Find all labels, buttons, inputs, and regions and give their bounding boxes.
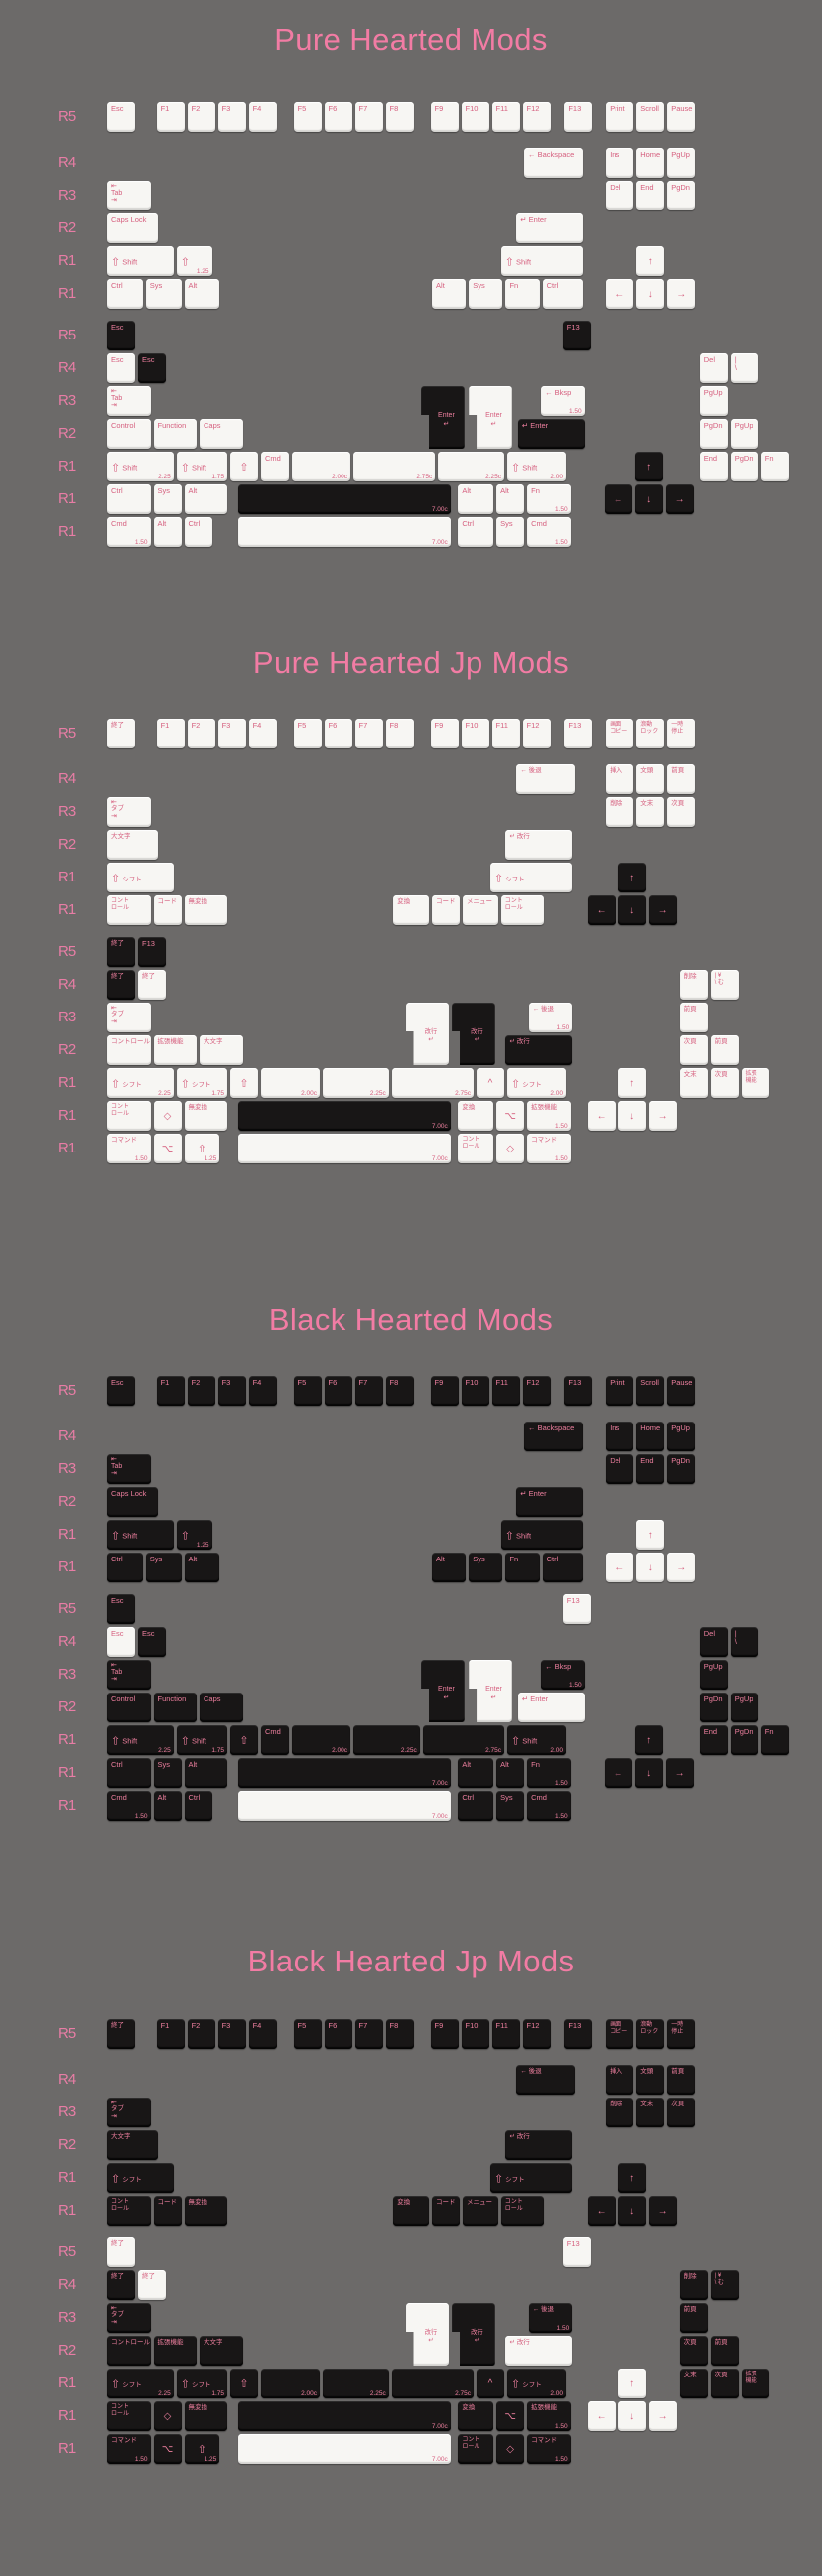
keycap: End bbox=[700, 1725, 728, 1755]
keycap: F4 bbox=[249, 719, 277, 748]
keycap: 終了 bbox=[138, 970, 166, 1000]
key-legend: F7 bbox=[359, 1379, 368, 1387]
key-legend: ⇧シフト bbox=[111, 2169, 142, 2187]
keycap: 大文字 bbox=[200, 2336, 243, 2366]
key-legend: Esc bbox=[142, 356, 155, 364]
keycap: ← Backspace bbox=[524, 148, 583, 178]
key-legend: コントロール bbox=[111, 2339, 150, 2346]
key-size-sublabel: 2.75c bbox=[416, 474, 432, 480]
key-legend: コマンド bbox=[111, 1137, 137, 1144]
keycap: 次頁 bbox=[667, 797, 695, 827]
keycap: F7 bbox=[355, 719, 383, 748]
key-legend: 拡張 機能 bbox=[746, 2372, 757, 2384]
row-label: R5 bbox=[58, 937, 99, 967]
row-label: R1 bbox=[58, 895, 99, 925]
keycap: 画面 コピー bbox=[606, 719, 633, 748]
key-legend: ↵ 改行 bbox=[509, 833, 529, 840]
keycap: F13 bbox=[563, 321, 591, 350]
key-size-sublabel: 7.00c bbox=[432, 1155, 448, 1162]
key-legend: F4 bbox=[253, 2022, 262, 2030]
key-glyph: ⇧ bbox=[230, 452, 258, 481]
key-size-sublabel: 1.25 bbox=[205, 2456, 217, 2463]
row-label: R1 bbox=[58, 1725, 99, 1755]
key-glyph: ← bbox=[605, 1758, 632, 1788]
keycap: Enter ↵ bbox=[469, 386, 512, 449]
key-legend: F2 bbox=[192, 2022, 201, 2030]
key-legend: F8 bbox=[390, 2022, 399, 2030]
row-label: R2 bbox=[58, 1693, 99, 1722]
keycap: ⇧ bbox=[230, 452, 258, 481]
keycap: ← Bksp1.50 bbox=[541, 386, 585, 416]
row-label: R1 bbox=[58, 1068, 99, 1098]
key-legend: F3 bbox=[222, 722, 231, 730]
shift-icon: ⇧ bbox=[111, 2174, 120, 2186]
keycap: F4 bbox=[249, 2019, 277, 2049]
key-legend: Alt bbox=[500, 1761, 509, 1769]
keycap: 滾動 ロック bbox=[636, 719, 664, 748]
key-legend-text: Shift bbox=[522, 464, 537, 473]
key-legend: Cmd bbox=[265, 1728, 281, 1736]
key-glyph: → bbox=[666, 484, 694, 514]
key-glyph: ↓ bbox=[636, 1553, 664, 1582]
keycap: → bbox=[649, 2401, 677, 2431]
keycap: → bbox=[667, 279, 695, 309]
key-legend: 拡張機能 bbox=[158, 2339, 184, 2346]
keycap: ← bbox=[605, 1758, 632, 1788]
key-legend: メニュー bbox=[467, 898, 492, 905]
keycap: PgDn bbox=[731, 452, 758, 481]
key-glyph: ^ bbox=[477, 2369, 504, 2398]
key-legend: コント ロール bbox=[462, 2437, 479, 2450]
key-legend: Ins bbox=[610, 1424, 619, 1432]
keycap: ↓ bbox=[618, 895, 646, 925]
key-legend-text: Shift bbox=[522, 1737, 537, 1746]
keycap: F1 bbox=[157, 2019, 185, 2049]
keycap: F1 bbox=[157, 1376, 185, 1406]
keycap: | ¥ \ む bbox=[711, 2270, 739, 2300]
keycap: F9 bbox=[431, 719, 459, 748]
keycap: F6 bbox=[325, 102, 352, 132]
keycap: | \ bbox=[731, 353, 758, 383]
key-legend: F7 bbox=[359, 722, 368, 730]
keycap: Scroll bbox=[636, 1376, 664, 1406]
key-legend: PgDn bbox=[671, 1457, 690, 1465]
key-size-sublabel: 2.00 bbox=[550, 1090, 563, 1097]
keycap: ↵ 改行 bbox=[505, 2130, 572, 2160]
keycap: Cmd1.50 bbox=[107, 517, 151, 547]
key-legend: PgUp bbox=[704, 389, 723, 397]
key-size-sublabel: 2.25c bbox=[401, 1747, 417, 1754]
key-legend: 終了 bbox=[111, 2273, 124, 2280]
key-legend: End bbox=[704, 455, 717, 463]
key-legend: ↵ Enter bbox=[522, 1695, 548, 1703]
shift-icon: ⇧ bbox=[111, 1531, 120, 1543]
keycap: Pause bbox=[667, 102, 695, 132]
keycap: 改行 ↵ bbox=[406, 1003, 450, 1065]
keycap: F13 bbox=[564, 719, 592, 748]
row-label: R1 bbox=[58, 2401, 99, 2431]
key-legend: | \ bbox=[735, 356, 737, 373]
keycap: Fn bbox=[505, 1553, 539, 1582]
keycap: | \ bbox=[731, 1627, 758, 1657]
keycap: 前頁 bbox=[667, 764, 695, 794]
keycap: Esc bbox=[138, 1627, 166, 1657]
keycap: F12 bbox=[523, 1376, 551, 1406]
key-legend: F9 bbox=[435, 105, 444, 113]
keycap: → bbox=[666, 484, 694, 514]
key-legend: F10 bbox=[466, 105, 479, 113]
key-legend-text: シフト bbox=[192, 2382, 211, 2389]
key-legend: Ctrl bbox=[111, 487, 123, 495]
key-legend: Enter ↵ bbox=[429, 412, 464, 429]
key-legend: F12 bbox=[527, 1379, 540, 1387]
key-legend: Control bbox=[111, 422, 135, 430]
key-legend-text: シフト bbox=[122, 2382, 142, 2389]
key-legend: ⇧Shift bbox=[181, 458, 206, 475]
keycap: 文末 bbox=[680, 1068, 708, 1098]
keycap: F11 bbox=[492, 2019, 520, 2049]
key-legend: Ctrl bbox=[189, 520, 201, 528]
keycap: Esc bbox=[138, 353, 166, 383]
key-legend: Alt bbox=[500, 487, 509, 495]
keycap: F7 bbox=[355, 102, 383, 132]
key-glyph: ← bbox=[606, 1553, 633, 1582]
key-legend: F4 bbox=[253, 1379, 262, 1387]
key-legend: コード bbox=[436, 898, 456, 905]
keycap: Print bbox=[606, 102, 633, 132]
keycap: 変換 bbox=[458, 1101, 493, 1131]
keycap: 前頁 bbox=[711, 2336, 739, 2366]
key-legend: F13 bbox=[568, 2022, 581, 2030]
keycap: ↓ bbox=[635, 1758, 663, 1788]
keycap: Caps Lock bbox=[107, 1487, 158, 1517]
keycap: 文頭 bbox=[636, 764, 664, 794]
row-label: R1 bbox=[58, 863, 99, 892]
key-legend: Del bbox=[704, 1630, 715, 1638]
key-legend: F13 bbox=[568, 105, 581, 113]
key-legend: Alt bbox=[158, 520, 167, 528]
key-legend: ← Backspace bbox=[528, 151, 574, 159]
keycap: Alt bbox=[496, 484, 524, 514]
keycap: Sys bbox=[154, 1758, 182, 1788]
key-legend: F6 bbox=[329, 1379, 338, 1387]
key-legend: Alt bbox=[189, 1761, 198, 1769]
key-legend: Esc bbox=[111, 356, 124, 364]
keycap: 一時 停止 bbox=[667, 719, 695, 748]
key-legend: コント ロール bbox=[462, 1137, 479, 1150]
row-label: R1 bbox=[58, 452, 99, 481]
keycap: Cmd bbox=[261, 452, 289, 481]
keycap: 7.00c bbox=[238, 484, 451, 514]
shift-icon: ⇧ bbox=[511, 1079, 520, 1091]
key-legend: F3 bbox=[222, 1379, 231, 1387]
keycap: Home bbox=[636, 148, 664, 178]
key-legend: Home bbox=[640, 1424, 660, 1432]
keycap: ↓ bbox=[635, 484, 663, 514]
keycap: Esc bbox=[107, 321, 135, 350]
keycap: コマンド1.50 bbox=[107, 2434, 151, 2464]
keycap: Fn bbox=[761, 1725, 789, 1755]
keycap: F10 bbox=[462, 2019, 489, 2049]
row-label: R5 bbox=[58, 321, 99, 350]
key-legend: PgUp bbox=[671, 151, 690, 159]
keycap: 2.75c bbox=[392, 1068, 474, 1098]
key-size-sublabel: 2.00 bbox=[550, 1747, 563, 1754]
keycap: Fn1.50 bbox=[527, 484, 571, 514]
keycap: F13 bbox=[563, 1594, 591, 1624]
row-label: R1 bbox=[58, 246, 99, 276]
keycap: ⇤Tab⇥ bbox=[107, 386, 151, 416]
keycap: ↑ bbox=[635, 452, 663, 481]
key-legend: 文末 bbox=[684, 1071, 697, 1078]
key-legend: 終了 bbox=[111, 722, 124, 729]
key-glyph: → bbox=[667, 1553, 695, 1582]
row-label: R5 bbox=[58, 2019, 99, 2049]
keycap: 拡張 機能 bbox=[742, 1068, 769, 1098]
keycap: ↵ 改行 bbox=[505, 1035, 572, 1065]
row-label: R1 bbox=[58, 2434, 99, 2464]
key-legend: ⇤Tab⇥ bbox=[111, 388, 122, 409]
key-size-sublabel: 1.50 bbox=[555, 539, 568, 546]
key-legend: 拡張 機能 bbox=[746, 1071, 757, 1084]
key-legend: ⇤タブ⇥ bbox=[111, 2305, 124, 2326]
key-legend: F13 bbox=[567, 324, 580, 332]
key-legend: 無変換 bbox=[189, 2199, 208, 2206]
keycap: F11 bbox=[492, 1376, 520, 1406]
keycap: 7.00c bbox=[238, 1101, 451, 1131]
row-label: R1 bbox=[58, 517, 99, 547]
key-size-sublabel: 1.25 bbox=[205, 1155, 217, 1162]
keycap: F11 bbox=[492, 102, 520, 132]
keycap: 2.25c bbox=[323, 2369, 389, 2398]
tab-left-icon: ⇤ bbox=[111, 1456, 122, 1463]
keycap: Sys bbox=[469, 1553, 502, 1582]
key-legend: ⇧Shift bbox=[511, 1731, 537, 1749]
key-legend: F8 bbox=[390, 722, 399, 730]
row-label: R2 bbox=[58, 830, 99, 860]
key-glyph: ↑ bbox=[636, 246, 664, 276]
key-legend: PgDn bbox=[671, 184, 690, 192]
key-legend: コード bbox=[436, 2199, 456, 2206]
row-label: R2 bbox=[58, 213, 99, 243]
keycap: ⌥ bbox=[496, 1101, 524, 1131]
keycap: F6 bbox=[325, 2019, 352, 2049]
key-legend: ← 後退 bbox=[520, 767, 541, 774]
keycap: Ctrl bbox=[107, 279, 143, 309]
key-legend-text: タブ bbox=[111, 2312, 124, 2319]
key-glyph: ↓ bbox=[635, 484, 663, 514]
key-legend: Esc bbox=[111, 1597, 124, 1605]
keycap: F7 bbox=[355, 1376, 383, 1406]
keycap: ← Bksp1.50 bbox=[541, 1660, 585, 1690]
keycap: Sys bbox=[496, 517, 524, 547]
keycap: F3 bbox=[218, 2019, 246, 2049]
keycap: Enter ↵ bbox=[421, 386, 465, 449]
key-legend: Cmd bbox=[111, 1794, 127, 1802]
key-size-sublabel: 1.50 bbox=[135, 1813, 148, 1820]
key-legend: 画面 コピー bbox=[610, 722, 627, 735]
key-size-sublabel: 1.50 bbox=[555, 2423, 568, 2430]
key-size-sublabel: 2.00 bbox=[550, 474, 563, 480]
key-legend: 文末 bbox=[640, 2101, 653, 2107]
keycap: F13 bbox=[138, 937, 166, 967]
key-legend: Cmd bbox=[531, 1794, 547, 1802]
keycap: Caps Lock bbox=[107, 213, 158, 243]
tab-right-icon: ⇥ bbox=[111, 1470, 122, 1477]
keycap: ↵ Enter bbox=[518, 419, 585, 449]
key-legend: 大文字 bbox=[204, 2339, 223, 2346]
key-legend: PgUp bbox=[735, 1695, 753, 1703]
row-label: R2 bbox=[58, 419, 99, 449]
key-size-sublabel: 1.50 bbox=[557, 2325, 570, 2332]
keycap: 削除 bbox=[606, 2098, 633, 2127]
keycap: F9 bbox=[431, 2019, 459, 2049]
keycap: → bbox=[649, 895, 677, 925]
keycap: 7.00c bbox=[238, 1791, 451, 1821]
row-label: R5 bbox=[58, 102, 99, 132]
keycap: 次頁 bbox=[711, 1068, 739, 1098]
key-legend: コマンド bbox=[531, 1137, 557, 1144]
keycap: Ins bbox=[606, 1422, 633, 1451]
key-size-sublabel: 7.00c bbox=[432, 1780, 448, 1787]
keycap: Sys bbox=[146, 1553, 182, 1582]
key-size-sublabel: 2.75c bbox=[455, 2390, 471, 2397]
key-glyph: ↑ bbox=[635, 452, 663, 481]
keycap: 変換 bbox=[393, 895, 429, 925]
keycap: ⇤タブ⇥ bbox=[107, 2303, 151, 2333]
key-legend: 無変換 bbox=[189, 1104, 208, 1111]
keycap: 改行 ↵ bbox=[452, 2303, 495, 2366]
key-legend: ⇤タブ⇥ bbox=[111, 1005, 124, 1025]
keycap: ⇧シフト1.75 bbox=[177, 1068, 227, 1098]
key-legend-text: シフト bbox=[122, 877, 142, 883]
keycap: ⇧1.25 bbox=[177, 1520, 212, 1550]
keycap: 滾動 ロック bbox=[636, 2019, 664, 2049]
key-legend: PgDn bbox=[735, 455, 753, 463]
keycap: Sys bbox=[469, 279, 502, 309]
keycap: Caps bbox=[200, 419, 243, 449]
row-label: R1 bbox=[58, 1101, 99, 1131]
key-legend: F4 bbox=[253, 105, 262, 113]
key-legend: F11 bbox=[496, 1379, 508, 1387]
key-legend: ⇧ bbox=[181, 252, 190, 270]
keycap: PgUp bbox=[731, 419, 758, 449]
keycap: コントロール bbox=[107, 1035, 151, 1065]
keycap: 2.75c bbox=[423, 1725, 504, 1755]
key-size-sublabel: 7.00c bbox=[432, 2423, 448, 2430]
row-label: R4 bbox=[58, 148, 99, 178]
keycap: コマンド1.50 bbox=[527, 1134, 571, 1163]
keycap: 2.25c bbox=[353, 1725, 420, 1755]
key-legend: 改行 ↵ bbox=[414, 2329, 449, 2344]
key-size-sublabel: 1.50 bbox=[135, 539, 148, 546]
keycap: 文末 bbox=[636, 2098, 664, 2127]
keycap: ⇧Shift2.00 bbox=[507, 452, 566, 481]
keycap: → bbox=[649, 1101, 677, 1131]
tab-left-icon: ⇤ bbox=[111, 1662, 122, 1669]
keycap: Cmd1.50 bbox=[527, 1791, 571, 1821]
key-size-sublabel: 1.50 bbox=[135, 1155, 148, 1162]
keycap: Ctrl bbox=[543, 1553, 583, 1582]
keycap: ← bbox=[588, 1101, 616, 1131]
key-legend: Alt bbox=[189, 282, 198, 290]
key-glyph: ↑ bbox=[618, 2369, 646, 2398]
key-legend: ↵ 改行 bbox=[509, 2339, 529, 2346]
key-legend: Alt bbox=[436, 282, 445, 290]
key-legend: F4 bbox=[253, 722, 262, 730]
key-legend-text: Shift bbox=[516, 258, 531, 267]
key-legend: | ¥ \ む bbox=[715, 2273, 724, 2286]
row-label: R1 bbox=[58, 2196, 99, 2226]
keycap: F8 bbox=[386, 719, 414, 748]
row-label: R3 bbox=[58, 1454, 99, 1484]
keycap: End bbox=[636, 181, 664, 210]
keycap: F2 bbox=[188, 2019, 215, 2049]
keycap: 文末 bbox=[680, 2369, 708, 2398]
key-legend: コード bbox=[158, 2199, 178, 2206]
key-legend: F13 bbox=[567, 2240, 580, 2248]
row-label: R4 bbox=[58, 1422, 99, 1451]
key-legend: 終了 bbox=[111, 973, 124, 980]
key-size-sublabel: 1.50 bbox=[555, 2456, 568, 2463]
keycap: F10 bbox=[462, 719, 489, 748]
keycap: ↑ bbox=[635, 1725, 663, 1755]
keycap: PgUp bbox=[700, 1660, 728, 1690]
key-legend: ← Bksp bbox=[545, 389, 571, 397]
keycap: 改行 ↵ bbox=[406, 2303, 450, 2366]
keycap: 削除 bbox=[680, 970, 708, 1000]
keycap: F5 bbox=[294, 2019, 322, 2049]
keycap: 7.00c bbox=[238, 2434, 451, 2464]
shift-icon: ⇧ bbox=[181, 1531, 190, 1543]
key-legend-text: シフト bbox=[505, 2177, 525, 2184]
row-label: R2 bbox=[58, 1487, 99, 1517]
keycap: コント ロール bbox=[107, 2401, 151, 2431]
row-label: R3 bbox=[58, 181, 99, 210]
key-glyph: ◇ bbox=[496, 2434, 524, 2464]
key-size-sublabel: 7.00c bbox=[432, 2456, 448, 2463]
key-legend-text: Shift bbox=[122, 258, 137, 267]
key-glyph: ↓ bbox=[618, 1101, 646, 1131]
keycap: 前頁 bbox=[680, 2303, 708, 2333]
keycap: 終了 bbox=[107, 937, 135, 967]
key-legend: ← Backspace bbox=[528, 1424, 574, 1432]
keycap: ⇧Shift bbox=[501, 246, 583, 276]
key-legend: F13 bbox=[568, 1379, 581, 1387]
key-legend: 終了 bbox=[111, 2022, 124, 2029]
key-size-sublabel: 1.50 bbox=[569, 408, 582, 415]
shift-icon: ⇧ bbox=[111, 874, 120, 885]
key-legend: 次頁 bbox=[715, 1071, 728, 1078]
shift-icon: ⇧ bbox=[505, 1531, 514, 1543]
shift-icon: ⇧ bbox=[181, 1079, 190, 1091]
keycap: 次頁 bbox=[680, 1035, 708, 1065]
shift-icon: ⇧ bbox=[111, 2379, 120, 2391]
keycap: 変換 bbox=[393, 2196, 429, 2226]
key-glyph: → bbox=[649, 2196, 677, 2226]
shift-icon: ⇧ bbox=[111, 1736, 120, 1748]
key-legend: ← 後退 bbox=[533, 2306, 554, 2313]
key-legend: ⇧Shift bbox=[505, 1526, 531, 1544]
key-legend: ⇤Tab⇥ bbox=[111, 1456, 122, 1477]
key-legend: Ctrl bbox=[111, 282, 123, 290]
keycap: 次頁 bbox=[711, 2369, 739, 2398]
keycap: Del bbox=[700, 353, 728, 383]
keycap: F5 bbox=[294, 719, 322, 748]
key-size-sublabel: 1.50 bbox=[555, 1813, 568, 1820]
key-legend: ↵ Enter bbox=[520, 1490, 546, 1498]
keycap: ⇧Shift2.25 bbox=[107, 452, 174, 481]
